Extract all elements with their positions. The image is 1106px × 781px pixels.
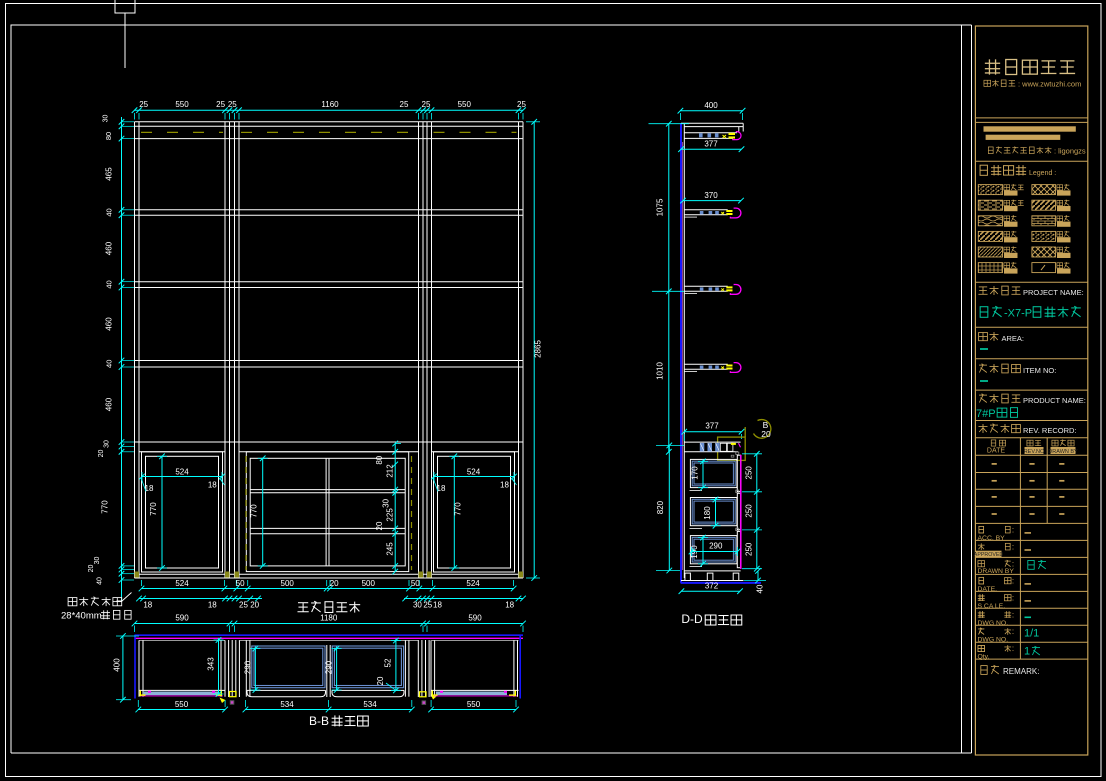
svg-text:524: 524 [467, 468, 481, 477]
svg-text::: : [1012, 525, 1014, 534]
svg-text:372: 372 [705, 582, 719, 591]
svg-text:770: 770 [250, 504, 259, 518]
svg-text:1/1: 1/1 [1024, 628, 1039, 640]
svg-text:770: 770 [149, 502, 158, 516]
svg-text:80: 80 [375, 455, 384, 464]
svg-text:534: 534 [280, 700, 294, 709]
svg-text:DATE.: DATE. [978, 586, 998, 593]
svg-text:50: 50 [236, 579, 245, 588]
svg-text:465: 465 [105, 167, 114, 181]
svg-text:25: 25 [228, 100, 237, 109]
svg-text:25: 25 [517, 100, 526, 109]
svg-text:2865: 2865 [534, 340, 543, 358]
svg-text::: : [1012, 542, 1014, 551]
svg-text:Qty.: Qty. [978, 654, 990, 661]
svg-text:ACC. BY: ACC. BY [978, 535, 1006, 542]
svg-text:550: 550 [467, 700, 481, 709]
svg-text:DWG NO.: DWG NO. [978, 620, 1009, 627]
svg-text:ITEM NO:: ITEM NO: [1023, 366, 1056, 375]
svg-text:1010: 1010 [656, 362, 665, 380]
svg-text:REV. RECORD:: REV. RECORD: [1023, 426, 1077, 435]
svg-text:30: 30 [103, 115, 110, 123]
svg-text:524: 524 [175, 579, 189, 588]
svg-text:20: 20 [375, 521, 384, 530]
svg-text:250: 250 [744, 466, 753, 480]
svg-text:20: 20 [250, 601, 259, 610]
svg-text:18: 18 [505, 601, 514, 610]
svg-text:1160: 1160 [321, 100, 339, 109]
svg-text:25: 25 [422, 100, 431, 109]
svg-text:30: 30 [413, 601, 422, 610]
svg-text:52: 52 [384, 658, 393, 667]
svg-text:18: 18 [143, 601, 152, 610]
svg-text:290: 290 [709, 542, 723, 551]
svg-text:18: 18 [208, 601, 217, 610]
svg-text:AREA:: AREA: [1002, 334, 1025, 343]
svg-text:550: 550 [175, 700, 189, 709]
svg-text:-X7-P: -X7-P [1004, 308, 1032, 320]
svg-text:30: 30 [104, 440, 111, 448]
svg-text:S CA LE.: S CA LE. [978, 603, 1006, 610]
svg-text:25: 25 [139, 100, 148, 109]
svg-text:400: 400 [113, 658, 122, 672]
svg-text:770: 770 [454, 502, 463, 516]
svg-text:30: 30 [382, 498, 391, 507]
svg-text:25: 25 [216, 100, 225, 109]
svg-text:40: 40 [105, 280, 114, 288]
svg-text:400: 400 [704, 101, 718, 110]
svg-text::: : [1012, 593, 1014, 602]
svg-text:DRAWN BY: DRAWN BY [1048, 449, 1078, 455]
svg-text:APPROVED: APPROVED [974, 552, 1004, 558]
svg-text:590: 590 [468, 614, 482, 623]
svg-text:370: 370 [704, 191, 718, 200]
svg-text:524: 524 [175, 468, 189, 477]
svg-text:D-D: D-D [681, 612, 703, 626]
svg-text:20: 20 [88, 565, 95, 573]
svg-text:40: 40 [105, 208, 114, 216]
svg-text:343: 343 [207, 657, 216, 671]
svg-text:B-B: B-B [309, 714, 329, 728]
svg-text:1: 1 [1024, 645, 1030, 657]
svg-text:500: 500 [362, 579, 376, 588]
svg-text:770: 770 [101, 500, 110, 514]
svg-text:25: 25 [239, 601, 248, 610]
svg-text:25: 25 [400, 100, 409, 109]
svg-text:18: 18 [433, 601, 442, 610]
svg-text:377: 377 [704, 140, 718, 149]
svg-text:180: 180 [703, 506, 712, 520]
svg-text:460: 460 [105, 241, 114, 255]
svg-text:REMARK:: REMARK: [1003, 667, 1039, 676]
svg-text:28*40mm: 28*40mm [61, 610, 102, 621]
svg-text:550: 550 [458, 100, 472, 109]
svg-text:290: 290 [325, 660, 334, 674]
svg-text:40: 40 [756, 584, 765, 593]
svg-text:REV.NO: REV.NO [1024, 449, 1045, 455]
svg-text:25: 25 [423, 601, 432, 610]
svg-text::: : [1012, 610, 1014, 619]
svg-text:590: 590 [175, 614, 189, 623]
svg-text:534: 534 [363, 700, 377, 709]
svg-text:245: 245 [385, 542, 394, 556]
svg-text:1180: 1180 [320, 614, 338, 623]
svg-text:377: 377 [705, 422, 719, 431]
svg-text:524: 524 [466, 579, 480, 588]
svg-text:PRODUCT NAME:: PRODUCT NAME: [1023, 396, 1086, 405]
svg-text:250: 250 [744, 542, 753, 556]
svg-text:: www.zwtuzhi.com: : www.zwtuzhi.com [1018, 80, 1081, 89]
svg-text:820: 820 [656, 500, 665, 514]
svg-text:30: 30 [94, 557, 101, 565]
svg-text:50: 50 [411, 579, 420, 588]
svg-text:40: 40 [97, 577, 104, 585]
svg-text:170: 170 [691, 466, 700, 480]
svg-text:40: 40 [105, 360, 114, 368]
svg-text:: ligongzs: : ligongzs [1054, 147, 1086, 156]
svg-text:460: 460 [105, 397, 114, 411]
svg-text:20: 20 [98, 450, 105, 458]
svg-text::: : [1012, 644, 1014, 653]
svg-text:18: 18 [208, 481, 217, 490]
svg-text::: : [1012, 627, 1014, 636]
svg-text::: : [1012, 576, 1014, 585]
svg-text:DWG NO.: DWG NO. [978, 637, 1009, 644]
svg-text:DATE: DATE [987, 448, 1005, 455]
svg-text:PROJECT NAME:: PROJECT NAME: [1023, 288, 1084, 297]
svg-text:212: 212 [385, 464, 394, 478]
svg-text:500: 500 [281, 579, 295, 588]
svg-text:290: 290 [244, 660, 253, 674]
svg-text:80: 80 [104, 132, 113, 140]
svg-text:Legend :: Legend : [1029, 170, 1056, 177]
svg-text:DRAWN BY: DRAWN BY [978, 568, 1015, 575]
svg-text:1075: 1075 [656, 198, 665, 216]
svg-text:20: 20 [761, 429, 771, 439]
svg-text:18: 18 [145, 484, 154, 493]
svg-text:460: 460 [105, 317, 114, 331]
svg-text:250: 250 [744, 504, 753, 518]
svg-text:20: 20 [330, 579, 339, 588]
svg-text:20: 20 [376, 676, 385, 685]
svg-text:18: 18 [500, 481, 509, 490]
svg-text:7#P: 7#P [976, 408, 996, 420]
svg-text:18: 18 [437, 484, 446, 493]
svg-text:225: 225 [385, 508, 394, 522]
svg-text:550: 550 [175, 100, 189, 109]
